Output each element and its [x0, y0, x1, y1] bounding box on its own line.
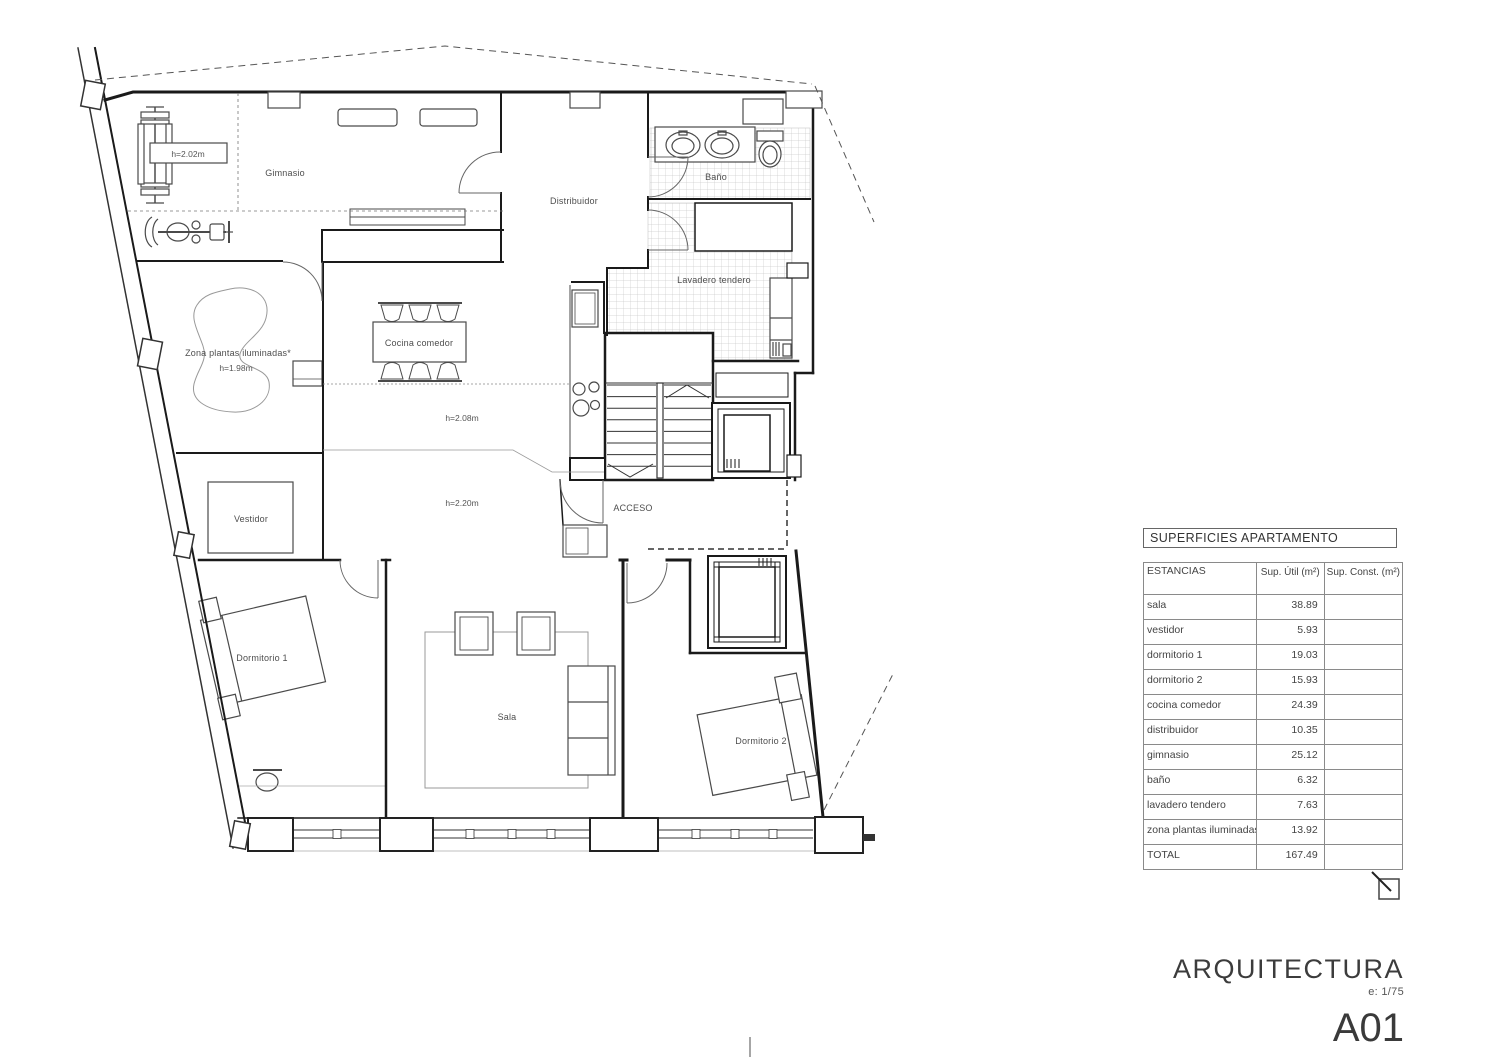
- surfaces-table: ESTANCIAS Sup. Útil (m²) Sup. Const. (m²…: [1143, 562, 1403, 870]
- room-label-cocina: Cocina comedor: [385, 338, 453, 348]
- armchair: [455, 612, 493, 655]
- south-facade: [248, 817, 875, 853]
- sheet-number: A01: [1173, 1008, 1404, 1048]
- gym-sideboard: [350, 209, 465, 217]
- sheet-scale: e: 1/75: [1173, 986, 1404, 998]
- column-header-sup-util: Sup. Útil (m²): [1257, 563, 1324, 595]
- height-label-220: h=2.20m: [445, 498, 478, 508]
- armchair: [517, 612, 555, 655]
- table-row: distribuidor10.35: [1144, 720, 1403, 745]
- room-label-acceso: ACCESO: [613, 503, 652, 513]
- surfaces-panel: SUPERFICIES APARTAMENTO ESTANCIAS Sup. Ú…: [1143, 528, 1403, 870]
- sofa: [568, 666, 615, 775]
- room-label-lavadero: Lavadero tendero: [677, 275, 751, 285]
- elevator-dormitorio: [708, 556, 786, 648]
- table-row: gimnasio25.12: [1144, 745, 1403, 770]
- sheet-discipline: ARQUITECTURA: [1173, 956, 1404, 983]
- title-block: ARQUITECTURA e: 1/75 A01: [1173, 956, 1404, 1048]
- height-label-zona: h=1.98m: [219, 363, 252, 373]
- exercise-bike: [145, 217, 233, 247]
- table-row: zona plantas iluminadas*13.92: [1144, 820, 1403, 845]
- column-header-estancias: ESTANCIAS: [1144, 563, 1257, 595]
- table-row: dormitorio 119.03: [1144, 645, 1403, 670]
- surfaces-table-title: SUPERFICIES APARTAMENTO: [1143, 528, 1397, 548]
- rug: [425, 632, 588, 788]
- kitchen-counter: [570, 285, 600, 458]
- room-label-distribuidor: Distribuidor: [550, 196, 598, 206]
- gym-sideboard: [350, 217, 465, 225]
- exterior-unit: [786, 91, 822, 108]
- nightstand: [775, 673, 802, 703]
- table-row: lavadero tendero7.63: [1144, 795, 1403, 820]
- room-label-bano: Baño: [705, 172, 727, 182]
- surfaces-table-body: sala38.89vestidor5.93dormitorio 119.03do…: [1144, 595, 1403, 870]
- staircase: [605, 333, 713, 480]
- table-row: sala38.89: [1144, 595, 1403, 620]
- table-row: dormitorio 215.93: [1144, 670, 1403, 695]
- zona-cabinet: [293, 361, 322, 386]
- room-label-sala: Sala: [498, 712, 517, 722]
- elevator-acceso: [712, 373, 790, 478]
- table-row: TOTAL167.49: [1144, 845, 1403, 870]
- room-label-gimnasio: Gimnasio: [265, 168, 305, 178]
- stool: [253, 770, 282, 791]
- height-label-gym: h=2.02m: [171, 149, 204, 159]
- table-row: baño6.32: [1144, 770, 1403, 795]
- table-row: vestidor5.93: [1144, 620, 1403, 645]
- height-label-208: h=2.08m: [445, 413, 478, 423]
- column-header-sup-const: Sup. Const. (m²): [1324, 563, 1402, 595]
- table-row: cocina comedor24.39: [1144, 695, 1403, 720]
- gym-shelf: [420, 109, 477, 126]
- table-header-row: ESTANCIAS Sup. Útil (m²) Sup. Const. (m²…: [1144, 563, 1403, 595]
- room-label-zona-plantas: Zona plantas iluminadas*: [185, 348, 291, 358]
- bath-cabinet: [743, 99, 783, 124]
- washing-machine: [770, 278, 792, 358]
- north-arrow-icon: [1372, 872, 1399, 899]
- room-label-dormitorio1: Dormitorio 1: [236, 653, 287, 663]
- laundry-storage: [695, 203, 792, 251]
- room-label-vestidor: Vestidor: [234, 514, 268, 524]
- bathroom-fixtures: [655, 127, 783, 167]
- room-label-dormitorio2: Dormitorio 2: [735, 736, 786, 746]
- gym-shelf: [338, 109, 397, 126]
